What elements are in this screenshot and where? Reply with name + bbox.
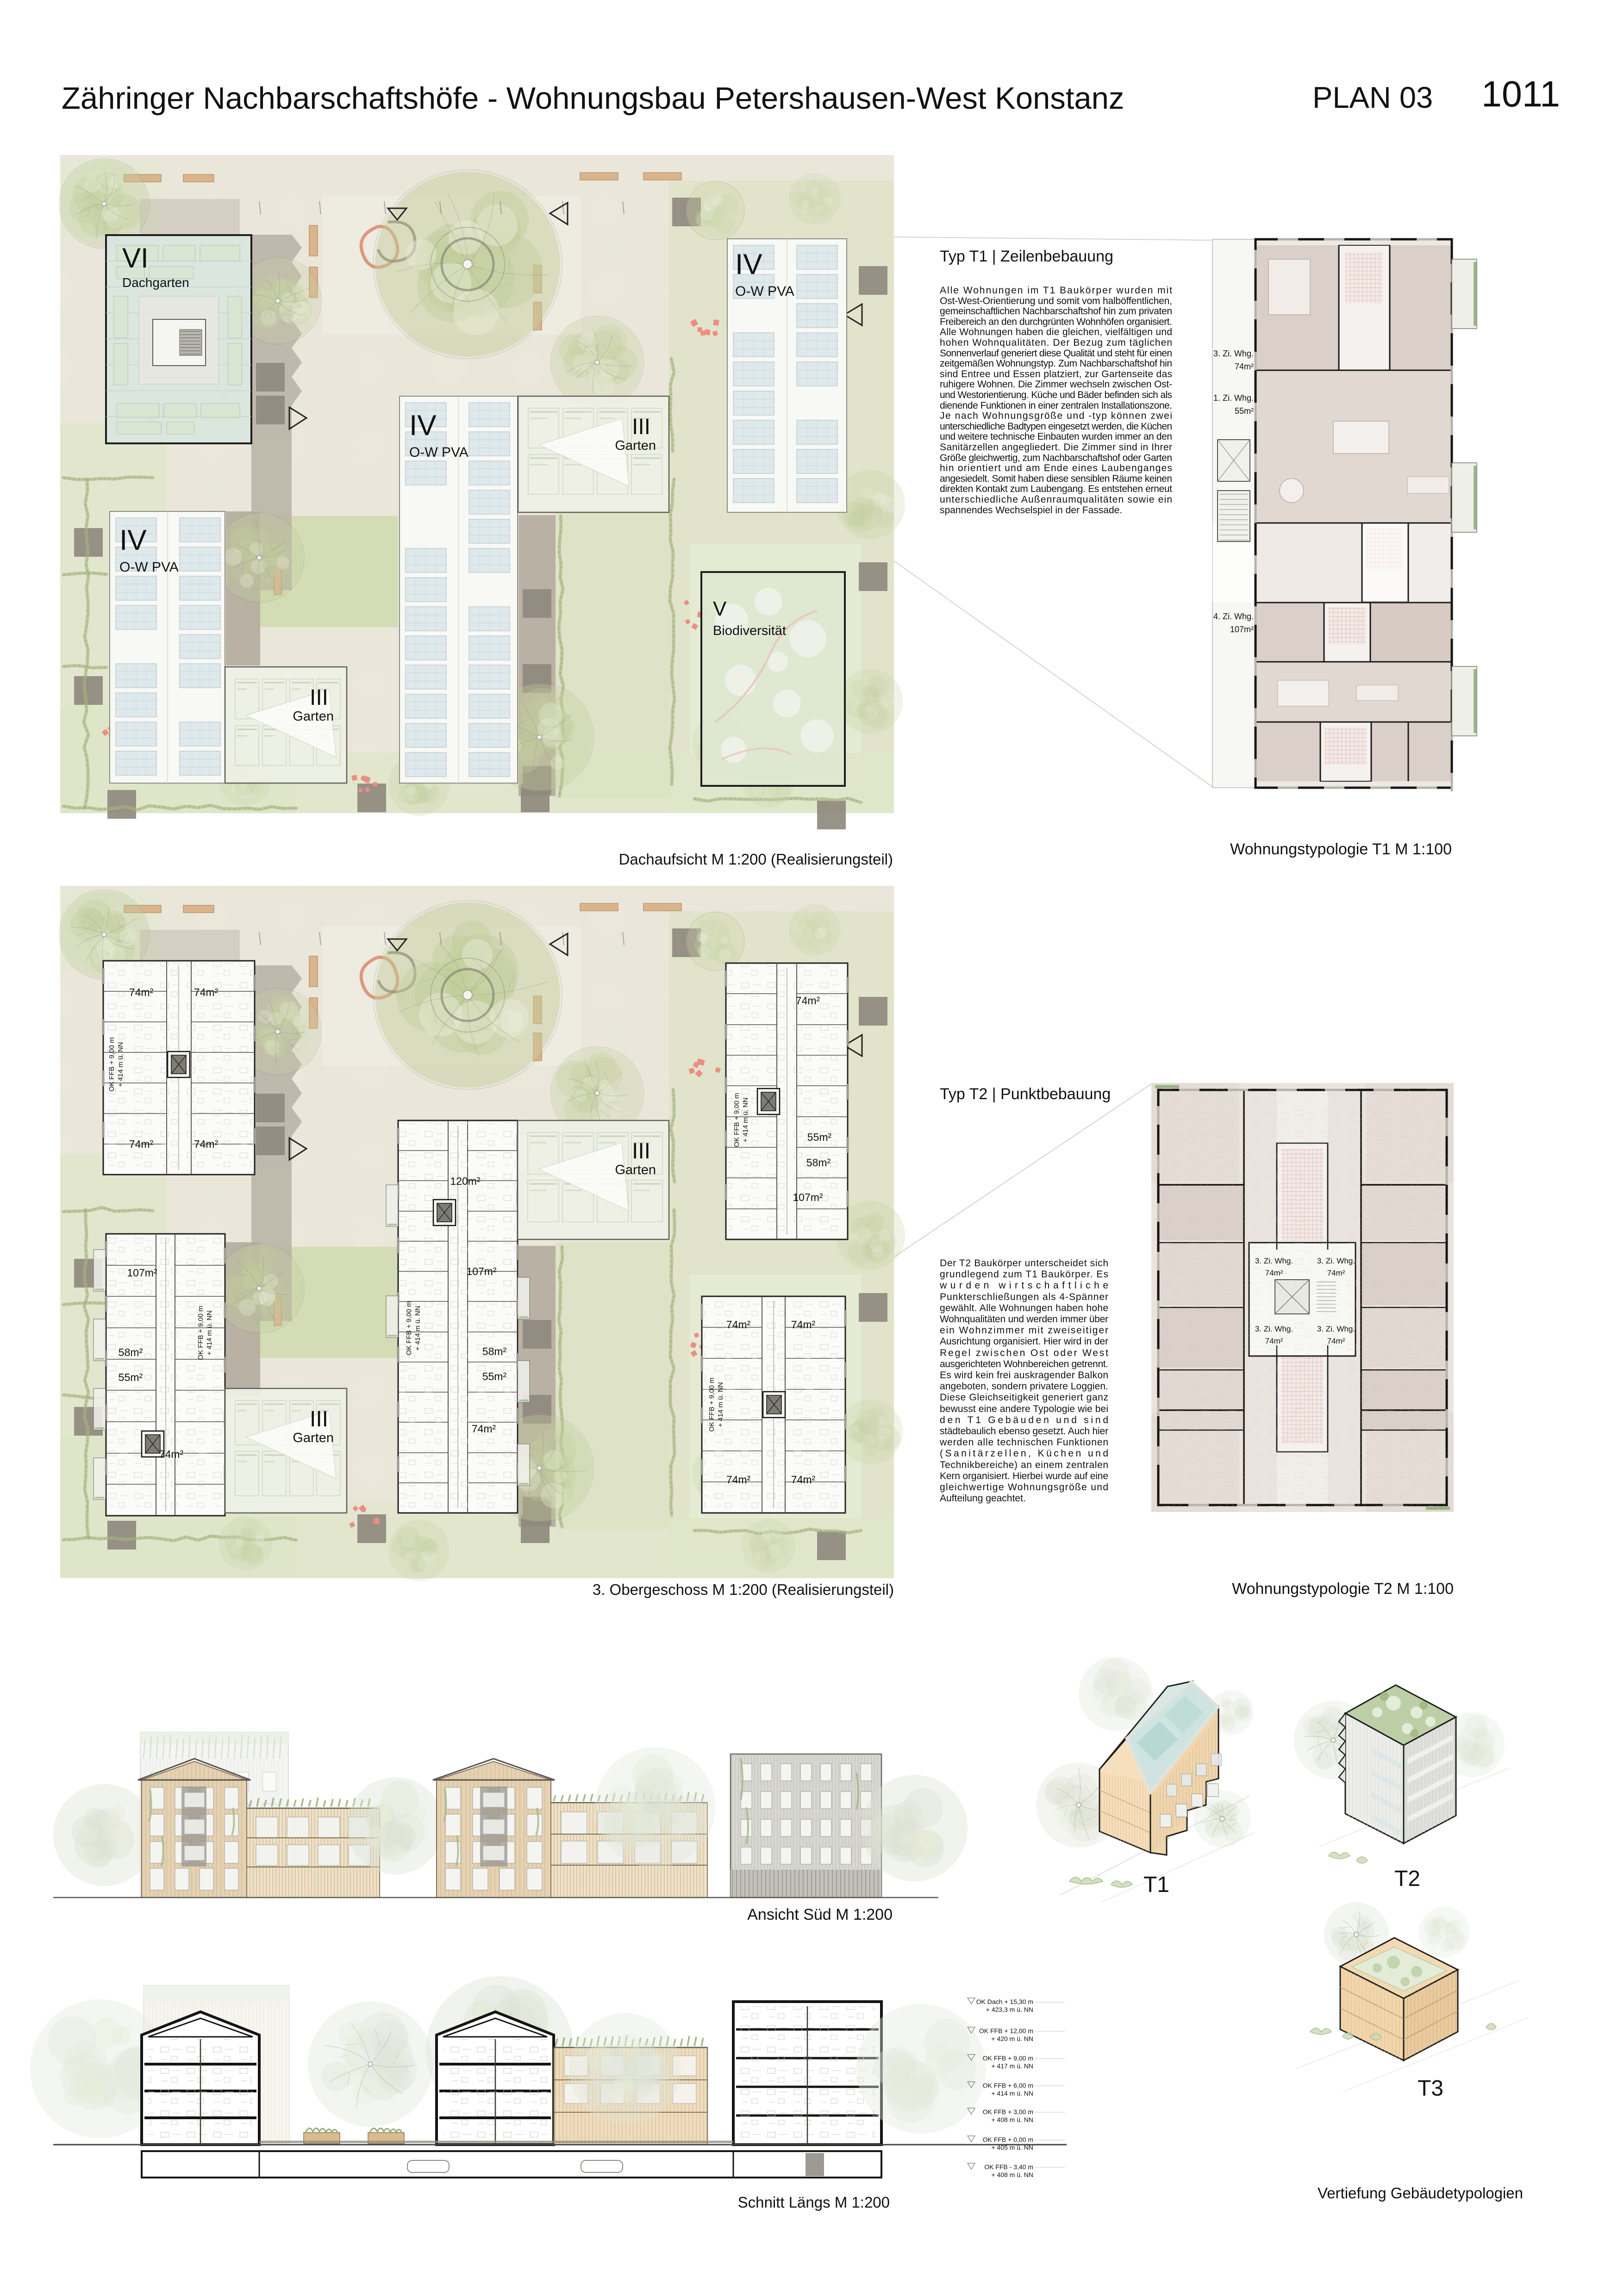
svg-text:Wohnungstypologie T2 M 1:100: Wohnungstypologie T2 M 1:100 bbox=[1232, 1580, 1454, 1598]
svg-text:Ost-West-Orientierung und somi: Ost-West-Orientierung und somit vom halb… bbox=[940, 296, 1172, 306]
svg-text:und weitere technische Einbaut: und weitere technische Einbauten wurden … bbox=[940, 431, 1172, 442]
svg-text:+ 414 m ü. NN: + 414 m ü. NN bbox=[414, 1306, 422, 1350]
svg-text:OK FFB + 9,00 m: OK FFB + 9,00 m bbox=[197, 1306, 205, 1360]
svg-text:Typ T2 | Punktbebauung: Typ T2 | Punktbebauung bbox=[940, 1085, 1111, 1103]
svg-text:OK FFB + 9,00 m: OK FFB + 9,00 m bbox=[405, 1301, 413, 1355]
svg-text:OK FFB + 9,00 m: OK FFB + 9,00 m bbox=[108, 1037, 116, 1091]
svg-text:dienende Funktionen in einer z: dienende Funktionen in einer zentralen I… bbox=[940, 400, 1172, 411]
svg-text:IV: IV bbox=[409, 410, 437, 442]
svg-text:Garten: Garten bbox=[615, 1163, 656, 1177]
svg-text:74m²: 74m² bbox=[791, 1319, 816, 1331]
svg-text:OK FFB + 12,00 m: OK FFB + 12,00 m bbox=[979, 2027, 1033, 2035]
svg-text:Es wird kein frei auskragender: Es wird kein frei auskragender Balkon bbox=[940, 1370, 1108, 1381]
svg-text:städtebaulich ebenso gesetzt.: städtebaulich ebenso gesetzt. Auch hier bbox=[940, 1426, 1108, 1437]
svg-text:74m²: 74m² bbox=[726, 1474, 751, 1486]
svg-text:74m²: 74m² bbox=[194, 986, 219, 998]
svg-text:OK FFB + 9,00 m: OK FFB + 9,00 m bbox=[733, 1093, 741, 1147]
svg-text:58m²: 58m² bbox=[482, 1345, 507, 1357]
svg-text:107m²: 107m² bbox=[127, 1267, 157, 1279]
svg-text:+ 414 m ü. NN: + 414 m ü. NN bbox=[991, 2090, 1033, 2097]
svg-text:74m²: 74m² bbox=[1327, 1269, 1345, 1277]
svg-text:V: V bbox=[713, 597, 727, 620]
svg-text:Sanitärzellen angegliedert. Di: Sanitärzellen angegliedert. Die Zimmer s… bbox=[940, 442, 1172, 453]
svg-text:58m²: 58m² bbox=[119, 1346, 143, 1358]
svg-text:spannendes Wechselspiel in der: spannendes Wechselspiel in der Fassade. bbox=[940, 505, 1122, 516]
svg-text:gemeinschaftlichen Nachbarscha: gemeinschaftlichen Nachbarschaftshof hin… bbox=[940, 306, 1172, 317]
svg-text:+ 420 m ü. NN: + 420 m ü. NN bbox=[991, 2035, 1033, 2042]
svg-text:O-W PVA: O-W PVA bbox=[409, 445, 468, 460]
svg-text:hohen Wohnqualitäten. Der Bezu: hohen Wohnqualitäten. Der Bezug zum tägl… bbox=[940, 337, 1172, 348]
svg-text:+ 414 m ü. NN: + 414 m ü. NN bbox=[117, 1042, 125, 1087]
svg-text:Typ T1 | Zeilenbebauung: Typ T1 | Zeilenbebauung bbox=[940, 248, 1113, 265]
svg-text:Zähringer Nachbarschaftshöfe -: Zähringer Nachbarschaftshöfe - Wohnungsb… bbox=[62, 81, 1124, 116]
svg-text:Vertiefung Gebäudetypologien: Vertiefung Gebäudetypologien bbox=[1318, 2184, 1523, 2202]
svg-text:gleichwertige Wohnungsgröße un: gleichwertige Wohnungsgröße und bbox=[940, 1482, 1108, 1493]
svg-text:Garten: Garten bbox=[293, 1431, 334, 1445]
svg-text:4. Zi. Whg.: 4. Zi. Whg. bbox=[1213, 612, 1254, 621]
svg-text:Sonnenverlauf generiert diese: Sonnenverlauf generiert diese Qualität u… bbox=[940, 348, 1172, 359]
svg-text:T3: T3 bbox=[1418, 2076, 1443, 2101]
svg-text:+ 414 m ü. NN: + 414 m ü. NN bbox=[206, 1310, 213, 1355]
svg-text:OK FFB + 9,00 m: OK FFB + 9,00 m bbox=[708, 1377, 716, 1431]
svg-text:+ 408 m ü. NN: + 408 m ü. NN bbox=[991, 2171, 1033, 2178]
svg-text:Wohnungstypologie T1 M 1:100: Wohnungstypologie T1 M 1:100 bbox=[1230, 840, 1452, 858]
svg-text:Alle Wohnungen haben die gleic: Alle Wohnungen haben die gleichen, vielf… bbox=[940, 327, 1172, 337]
svg-text:PLAN 03: PLAN 03 bbox=[1312, 81, 1433, 114]
svg-text:+ 414 m ü. NN: + 414 m ü. NN bbox=[717, 1382, 725, 1427]
svg-text:1. Zi. Whg.: 1. Zi. Whg. bbox=[1213, 393, 1254, 403]
svg-text:T1: T1 bbox=[1143, 1873, 1169, 1897]
svg-text:3. Obergeschoss M 1:200 (Reali: 3. Obergeschoss M 1:200 (Realisierungste… bbox=[593, 1581, 894, 1598]
svg-text:zeitgemäßen Wohnungstyp. Zum N: zeitgemäßen Wohnungstyp. Zum Nachbarscha… bbox=[940, 358, 1172, 369]
svg-text:Technikbereiche) an einem zent: Technikbereiche) an einem zentralen bbox=[940, 1460, 1108, 1470]
svg-text:3. Zi. Whg.: 3. Zi. Whg. bbox=[1255, 1325, 1293, 1333]
svg-text:werden alle technischen Funkti: werden alle technischen Funktionen bbox=[939, 1437, 1108, 1448]
svg-text:(Sanitärzellen, Küchen und: (Sanitärzellen, Küchen und bbox=[940, 1448, 1108, 1459]
svg-text:74m²: 74m² bbox=[194, 1138, 219, 1150]
svg-text:grundlegend zum T1 Baukörper.: grundlegend zum T1 Baukörper. Es bbox=[940, 1269, 1108, 1280]
svg-text:58m²: 58m² bbox=[806, 1157, 831, 1169]
svg-text:3. Zi. Whg.: 3. Zi. Whg. bbox=[1317, 1325, 1355, 1333]
svg-text:Garten: Garten bbox=[615, 438, 656, 453]
svg-text:74m²: 74m² bbox=[796, 995, 820, 1007]
svg-text:unterschiedliche Außenraumqual: unterschiedliche Außenraumqualitäten sow… bbox=[940, 494, 1172, 505]
svg-text:Ausrichtung organisiert. Hier: Ausrichtung organisiert. Hier wird in de… bbox=[940, 1336, 1108, 1347]
svg-text:55m²: 55m² bbox=[119, 1371, 143, 1383]
svg-text:74m²: 74m² bbox=[791, 1474, 816, 1486]
svg-text:Freibereich an den durchgrünte: Freibereich an den durchgrünten Wohnhöfe… bbox=[940, 317, 1172, 327]
svg-text:OK FFB + 3,00 m: OK FFB + 3,00 m bbox=[983, 2108, 1033, 2116]
svg-text:Garten: Garten bbox=[293, 709, 334, 724]
svg-text:+ 405 m ü. NN: + 405 m ü. NN bbox=[991, 2144, 1033, 2151]
svg-text:3. Zi. Whg.: 3. Zi. Whg. bbox=[1317, 1257, 1355, 1265]
svg-text:120m²: 120m² bbox=[450, 1175, 481, 1187]
svg-text:Größe gleichwertig, zum Nachba: Größe gleichwertig, zum Nachbarschaftsho… bbox=[940, 453, 1172, 463]
svg-text:Ansicht Süd M 1:200: Ansicht Süd M 1:200 bbox=[747, 1906, 893, 1923]
svg-text:OK FFB - 3,40 m: OK FFB - 3,40 m bbox=[984, 2163, 1033, 2171]
svg-text:74m²: 74m² bbox=[1327, 1337, 1345, 1345]
svg-text:+ 408 m ü. NN: + 408 m ü. NN bbox=[991, 2116, 1033, 2123]
svg-text:angeboten, sondern privatere L: angeboten, sondern privatere Loggien. bbox=[940, 1381, 1108, 1392]
svg-text:+ 423,3 m ü. NN: + 423,3 m ü. NN bbox=[986, 2006, 1033, 2013]
svg-text:74m²: 74m² bbox=[472, 1423, 496, 1435]
svg-text:Alle Wohnungen im T1 Baukörper: Alle Wohnungen im T1 Baukörper wurden mi… bbox=[940, 285, 1172, 296]
svg-text:III: III bbox=[310, 685, 328, 710]
svg-text:Schnitt Längs M 1:200: Schnitt Längs M 1:200 bbox=[738, 2194, 890, 2211]
svg-text:+ 414 m ü. NN: + 414 m ü. NN bbox=[742, 1097, 750, 1142]
svg-text:107m²: 107m² bbox=[1230, 625, 1254, 634]
svg-text:Biodiversität: Biodiversität bbox=[713, 623, 786, 638]
svg-text:ein Wohnzimmer mit zweiseitige: ein Wohnzimmer mit zweiseitiger bbox=[940, 1325, 1108, 1336]
svg-text:ausgerichteten Wohnbereichen g: ausgerichteten Wohnbereichen getrennt. bbox=[940, 1359, 1108, 1369]
svg-text:+ 417 m ü. NN: + 417 m ü. NN bbox=[991, 2062, 1033, 2070]
svg-text:1011: 1011 bbox=[1481, 73, 1560, 114]
svg-text:angesiedelt. Somit haben diese: angesiedelt. Somit haben diese sensiblen… bbox=[940, 473, 1172, 484]
svg-text:Kern organisiert. Hierbei wurd: Kern organisiert. Hierbei wurde auf eine bbox=[940, 1471, 1108, 1481]
svg-text:Dachgarten: Dachgarten bbox=[122, 275, 189, 290]
svg-text:Wohnqualitäten und werden imme: Wohnqualitäten und werden immer über bbox=[940, 1314, 1108, 1325]
svg-text:unterschiedliche Badtypen eing: unterschiedliche Badtypen eingesetzt wer… bbox=[940, 421, 1172, 432]
svg-text:3. Zi. Whg.: 3. Zi. Whg. bbox=[1255, 1257, 1293, 1265]
svg-text:O-W PVA: O-W PVA bbox=[735, 284, 794, 299]
svg-text:55m²: 55m² bbox=[482, 1370, 507, 1382]
svg-text:74m²: 74m² bbox=[1265, 1337, 1283, 1345]
svg-text:T2: T2 bbox=[1394, 1867, 1420, 1891]
svg-text:III: III bbox=[632, 1139, 650, 1164]
svg-text:ruhigere Wohnen. Die Zimmer we: ruhigere Wohnen. Die Zimmer wechseln zwi… bbox=[940, 379, 1172, 390]
svg-text:Diese Gleichseitigkeit generie: Diese Gleichseitigkeit generiert ganz bbox=[940, 1392, 1108, 1403]
svg-text:74m²: 74m² bbox=[726, 1319, 751, 1331]
svg-text:Aufteilung geachtet.: Aufteilung geachtet. bbox=[940, 1493, 1026, 1504]
svg-text:74m²: 74m² bbox=[159, 1448, 184, 1460]
svg-text:Dachaufsicht M 1:200 (Realisie: Dachaufsicht M 1:200 (Realisierungsteil) bbox=[619, 851, 893, 868]
svg-text:bewusst eine andere Typologie: bewusst eine andere Typologie wie bei bbox=[940, 1404, 1108, 1414]
svg-text:III: III bbox=[632, 415, 650, 439]
svg-text:und Westorientierung. Küche un: und Westorientierung. Küche und Bäder be… bbox=[940, 390, 1172, 400]
svg-text:Der T2 Baukörper unterscheidet: Der T2 Baukörper unterscheidet sich bbox=[940, 1258, 1108, 1269]
svg-text:O-W PVA: O-W PVA bbox=[119, 560, 179, 575]
svg-text:OK FFB + 0,00 m: OK FFB + 0,00 m bbox=[983, 2136, 1033, 2143]
svg-text:74m²: 74m² bbox=[1265, 1269, 1283, 1277]
svg-text:107m²: 107m² bbox=[793, 1191, 823, 1203]
svg-text:sind Entree und Essen platzier: sind Entree und Essen platziert, zur Gar… bbox=[940, 369, 1172, 380]
svg-text:OK FFB + 9,00 m: OK FFB + 9,00 m bbox=[983, 2054, 1033, 2062]
svg-text:107m²: 107m² bbox=[466, 1265, 497, 1277]
svg-text:Regel zwischen Ost oder West: Regel zwischen Ost oder West bbox=[940, 1348, 1108, 1358]
svg-text:OK FFB + 6,00 m: OK FFB + 6,00 m bbox=[983, 2082, 1033, 2089]
svg-text:III: III bbox=[310, 1407, 328, 1431]
svg-text:VI: VI bbox=[122, 243, 149, 274]
svg-text:Punkterschließungen als 4-Spän: Punkterschließungen als 4-Spänner bbox=[940, 1292, 1108, 1302]
svg-text:Je nach Wohnungsgröße und -typ: Je nach Wohnungsgröße und -typ können zw… bbox=[940, 411, 1172, 421]
svg-text:OK Dach + 15,30 m: OK Dach + 15,30 m bbox=[976, 1998, 1033, 2005]
svg-text:IV: IV bbox=[119, 524, 147, 556]
svg-text:IV: IV bbox=[735, 249, 762, 280]
svg-text:gewählt. Alle Wohnungen haben: gewählt. Alle Wohnungen haben hohe bbox=[940, 1303, 1108, 1313]
svg-text:3. Zi. Whg.: 3. Zi. Whg. bbox=[1213, 349, 1254, 358]
svg-text:74m²: 74m² bbox=[129, 986, 154, 998]
svg-text:55m²: 55m² bbox=[807, 1131, 832, 1143]
svg-text:55m²: 55m² bbox=[1235, 406, 1254, 416]
svg-text:74m²: 74m² bbox=[129, 1138, 154, 1150]
svg-text:direkten Kontakt zum Laubengan: direkten Kontakt zum Laubengang. Es ents… bbox=[940, 484, 1172, 494]
svg-text:74m²: 74m² bbox=[1235, 362, 1254, 371]
svg-text:hin orientiert und am Ende ein: hin orientiert und am Ende eines Laubeng… bbox=[940, 463, 1172, 473]
